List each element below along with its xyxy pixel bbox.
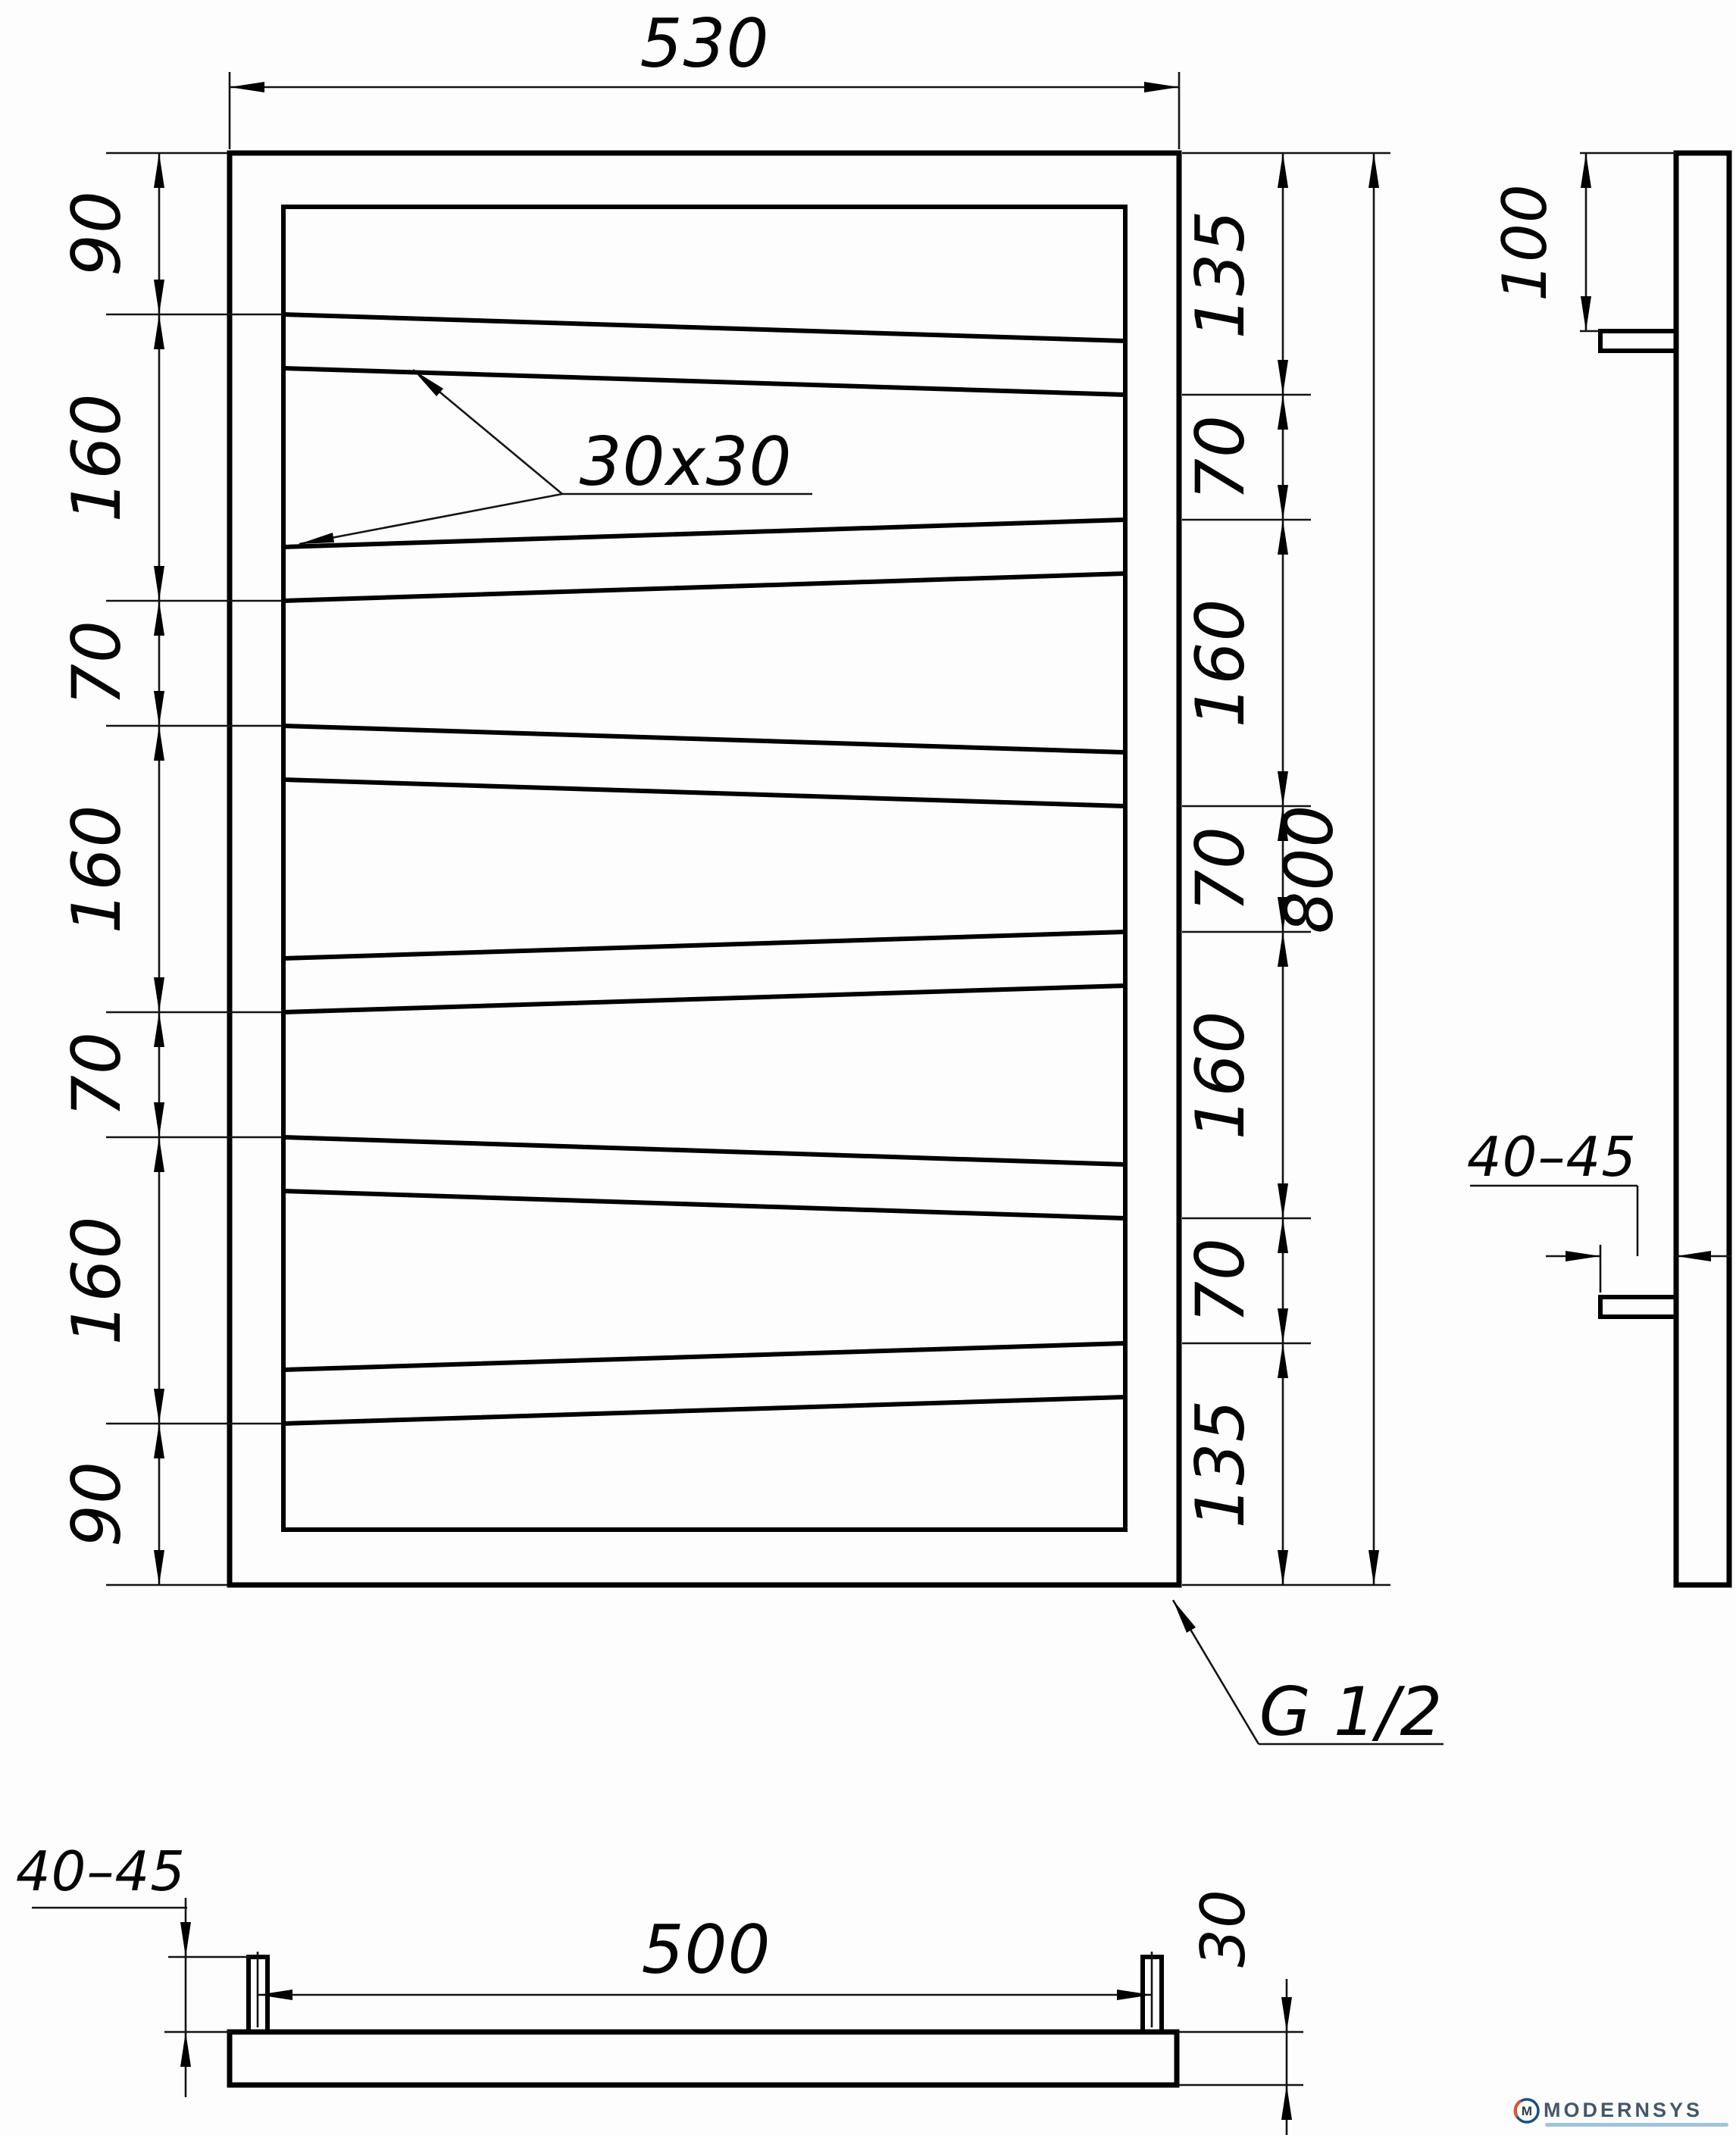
dimension-40-45-side: 40–45 (1467, 1125, 1731, 1293)
left-chain-label-5: 70 (58, 1031, 136, 1118)
right-chain-label-2: 70 (1181, 414, 1259, 501)
zigzag-tube-2 (283, 520, 1125, 601)
left-chain-label-7: 90 (58, 1461, 136, 1547)
dim-label-500: 500 (642, 1911, 771, 1989)
right-chain-label-3: 160 (1181, 599, 1259, 728)
dimension-40-45-bottom: 40–45 (16, 1840, 250, 2097)
left-chain-label-3: 70 (58, 620, 136, 706)
left-chain-label-1: 90 (58, 190, 136, 277)
dimension-500: 500 (258, 1911, 1152, 2000)
front-view (230, 153, 1179, 1585)
leader-arrow-lower (299, 533, 334, 544)
bottom-view: 500 30 40–45 (16, 1840, 1303, 2135)
dimension-530: 530 (230, 5, 1179, 149)
right-chain-label-5: 160 (1181, 1011, 1259, 1140)
zigzag-tube-6 (283, 1343, 1125, 1424)
drawing-page: 530 90 160 70 160 70 160 90 (0, 0, 1736, 2135)
thread-callout: G 1/2 (1173, 1600, 1444, 1751)
dim-label-800: 800 (1270, 805, 1348, 934)
zigzag-tube-1 (283, 314, 1125, 395)
dim-label-100: 100 (1490, 183, 1560, 302)
logo-ring-accent-icon (1515, 2101, 1521, 2117)
frame-inner-outline (283, 207, 1125, 1530)
dimension-30: 30 (1179, 1889, 1303, 2135)
side-view: 100 40–45 (1467, 153, 1731, 1585)
dim-label-40-45-bottom: 40–45 (16, 1840, 186, 1903)
dim-label-g12: G 1/2 (1259, 1673, 1444, 1751)
right-chain-label-1: 135 (1181, 210, 1259, 339)
zigzag-tube-5 (283, 1137, 1125, 1218)
side-bracket-bottom (1600, 1297, 1676, 1317)
right-chain-label-4: 70 (1181, 826, 1259, 912)
logo-wordmark: MODERNSYS (1544, 2099, 1703, 2121)
dim-label-40-45-side: 40–45 (1467, 1125, 1637, 1189)
side-bracket-top (1600, 331, 1676, 351)
logo-tagline-line (1545, 2123, 1728, 2127)
zigzag-tube-4 (283, 932, 1125, 1012)
logo: M MODERNSYS (1515, 2099, 1728, 2127)
logo-monogram: M (1522, 2104, 1532, 2118)
bottom-tube-outline (230, 2032, 1177, 2085)
zigzag-tube-3 (283, 726, 1125, 806)
left-chain-label-2: 160 (58, 393, 136, 523)
technical-drawing-canvas: 530 90 160 70 160 70 160 90 (0, 0, 1736, 2135)
dim-label-30x30: 30x30 (579, 423, 792, 501)
left-chain-label-4: 160 (58, 805, 136, 934)
tube-section-callout: 30x30 (299, 370, 812, 544)
side-tube-outline (1676, 153, 1729, 1585)
leader-arrow-thread (1173, 1600, 1196, 1633)
right-chain-label-7: 135 (1181, 1399, 1259, 1529)
frame-outer-outline (230, 153, 1179, 1585)
dim-label-530: 530 (640, 5, 770, 83)
right-chain-label-6: 70 (1181, 1237, 1259, 1324)
dimension-100: 100 (1490, 153, 1676, 331)
left-dimension-chain: 90 160 70 160 70 160 90 (58, 153, 282, 1585)
dim-label-30: 30 (1188, 1889, 1259, 1968)
left-chain-label-6: 160 (58, 1216, 136, 1346)
